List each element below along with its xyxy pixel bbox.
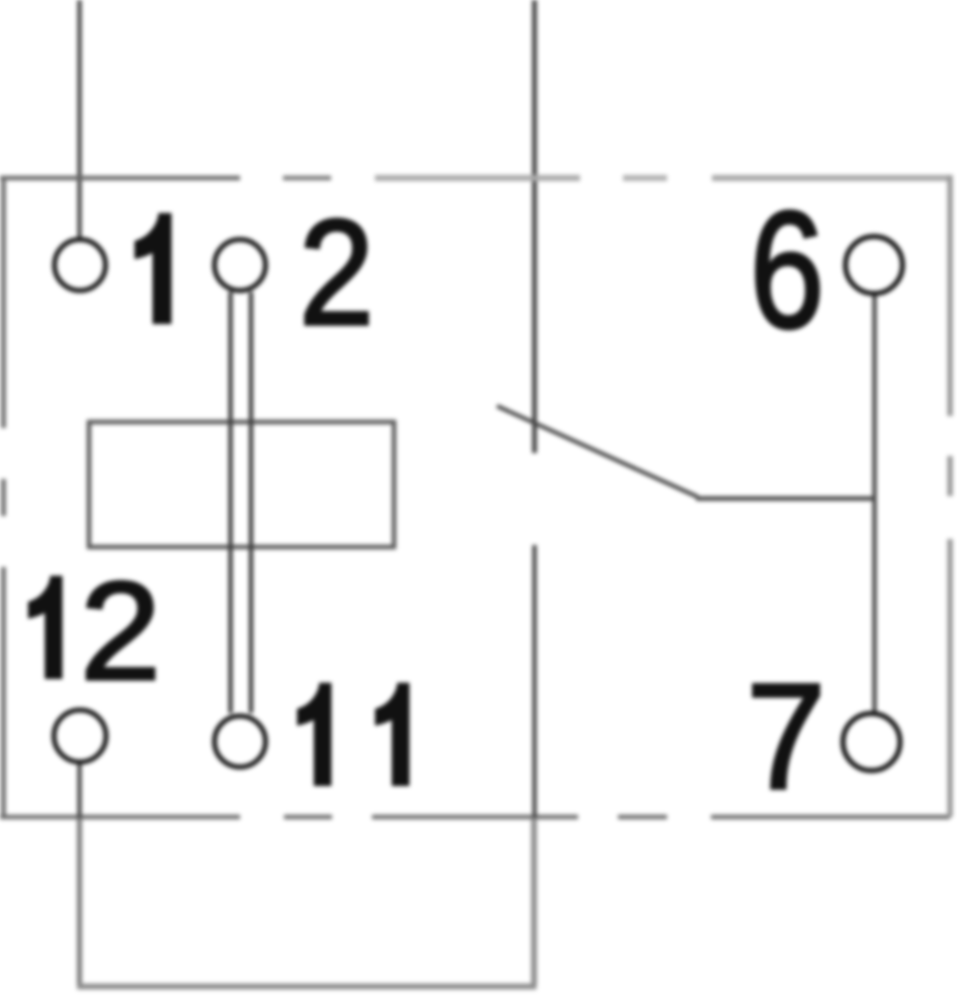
svg-text:2: 2: [80, 554, 161, 710]
svg-text:6: 6: [750, 178, 825, 364]
svg-text:7: 7: [746, 654, 825, 821]
svg-text:2: 2: [299, 189, 374, 356]
